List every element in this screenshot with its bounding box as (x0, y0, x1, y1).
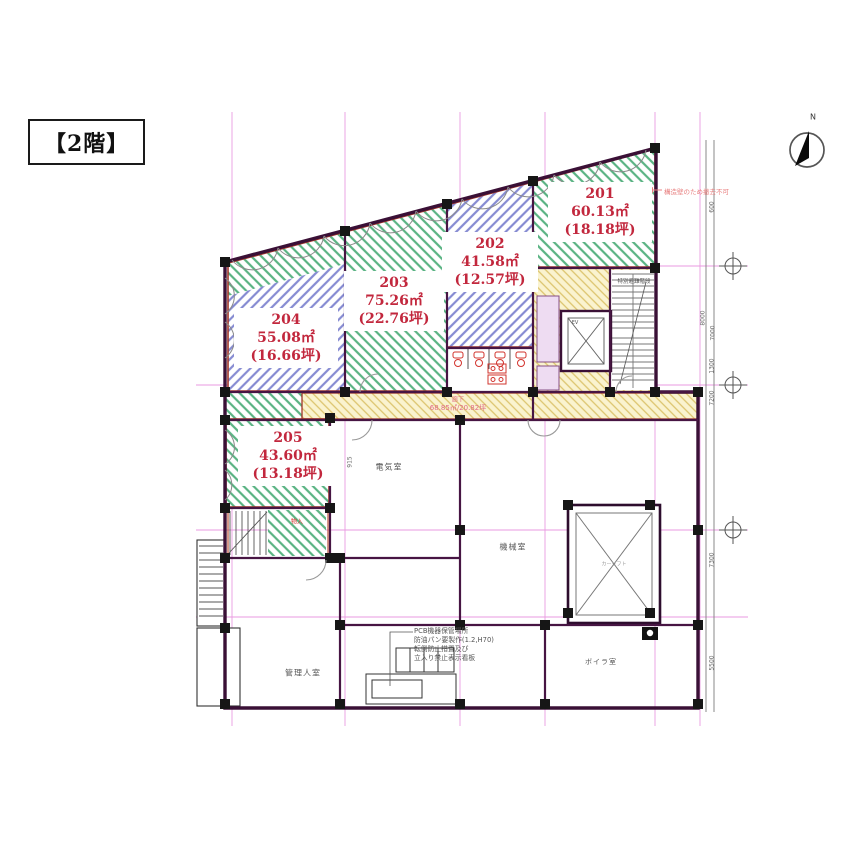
dim-915: 915 (347, 456, 354, 467)
room-machine: 機械室 (500, 542, 527, 553)
room-car-lift: カーリフト (601, 561, 626, 568)
unit-label-201: 201 60.13㎡ (18.18坪) (548, 182, 652, 242)
compass-north-label: N (810, 113, 816, 122)
unit-201-tsubo: (18.18坪) (550, 221, 650, 239)
corridor-area: 68.85㎡/20.82坪 (430, 403, 486, 413)
unit-label-204: 204 55.08㎡ (16.66坪) (234, 308, 338, 368)
boiler-door (642, 627, 658, 640)
dim-8000: 8000 (700, 310, 707, 325)
unit-203-tsubo: (22.76坪) (346, 310, 442, 328)
dim-7300: 7300 (709, 552, 716, 567)
unit-205-tsubo: (13.18坪) (240, 465, 336, 483)
pcb-note-line2: 防油パン要製作(1.2,H70) (414, 636, 544, 645)
pcb-note-line4: 立入り禁止表示看板 (414, 654, 544, 663)
unit-203-number: 203 (346, 274, 442, 292)
pcb-note-line3: 転倒防止措置及び (414, 645, 544, 654)
unit-205-area: 43.60㎡ (240, 447, 336, 465)
pcb-note-line1: PCB機器保管場所 (414, 627, 544, 636)
room-boiler: ボイラ室 (585, 657, 617, 667)
dim-1300: 1300 (709, 358, 716, 373)
unit-label-202: 202 41.58㎡ (12.57坪) (442, 232, 538, 292)
unit-201-area: 60.13㎡ (550, 203, 650, 221)
dim-600: 600 (709, 201, 716, 212)
dim-7200: 7200 (709, 390, 716, 405)
pcb-note: PCB機器保管場所 防油パン要製作(1.2,H70) 転倒防止措置及び 立入り禁… (414, 627, 544, 663)
unit-201-number: 201 (550, 185, 650, 203)
unit-label-205: 205 43.60㎡ (13.18坪) (238, 426, 338, 486)
interior-stair (229, 511, 267, 555)
room-electrical: 電気室 (376, 462, 403, 473)
unit-202-tsubo: (12.57坪) (444, 271, 536, 289)
unit-202-number: 202 (444, 235, 536, 253)
unit-label-203: 203 75.26㎡ (22.76坪) (344, 271, 444, 331)
unit-204-area: 55.08㎡ (236, 329, 336, 347)
unit-204-number: 204 (236, 311, 336, 329)
room-elevator: EV (572, 320, 579, 326)
unit-203-area: 75.26㎡ (346, 292, 442, 310)
unit-202-area: 41.58㎡ (444, 253, 536, 271)
unit-204-tsubo: (16.66坪) (236, 347, 336, 365)
north-compass-icon (790, 131, 824, 167)
dim-5500: 5500 (709, 655, 716, 670)
dimension-lines (706, 140, 747, 712)
dim-7000: 7000 (710, 325, 717, 340)
toilet-block (447, 348, 533, 392)
room-escape-stair: 特別避難階段 (617, 277, 650, 285)
structure-wall-note: 構造壁のため撤去不可 (664, 186, 729, 196)
unit-205-number: 205 (240, 429, 336, 447)
room-caretaker: 管理人室 (285, 668, 321, 679)
escape-stair (610, 270, 656, 390)
outside-stair (197, 540, 240, 706)
room-storage: 物入 (291, 517, 303, 526)
floor-title-box: 【2階】 (28, 119, 145, 165)
floorplan-page: 【2階】 N 201 60.13㎡ (18.18坪) 202 41.58㎡ (1… (0, 0, 846, 846)
